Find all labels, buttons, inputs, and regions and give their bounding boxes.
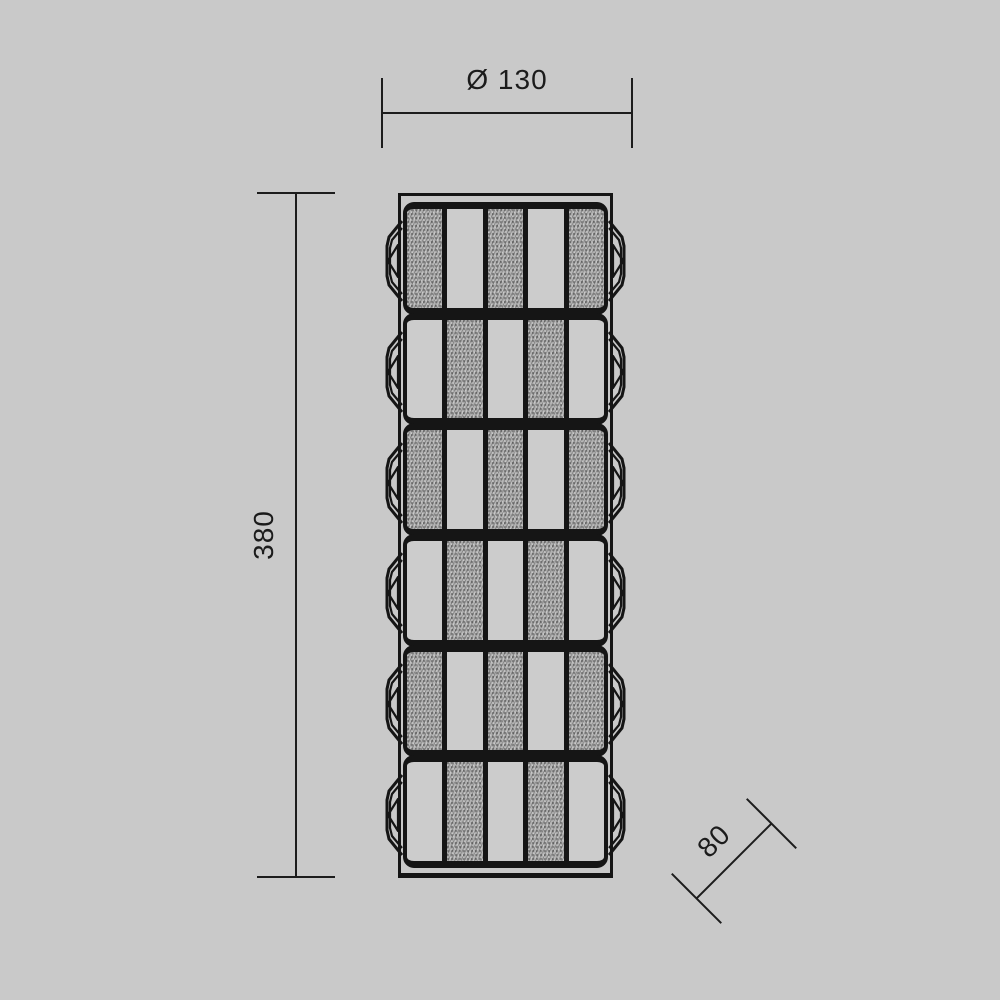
left-faceted-bulb-icon [383,662,403,746]
right-faceted-bulb-icon [608,441,628,525]
plain-glass-stripe [447,652,482,751]
hatched-glass-stripe [528,320,563,419]
depth-dimension: 80 [697,824,772,899]
plain-glass-stripe [528,652,563,751]
height-dimension-tick-bottom [257,876,335,878]
left-faceted-bulb-icon [383,219,403,303]
height-dimension-line [295,193,297,878]
plain-glass-stripe [488,762,523,861]
depth-dimension-label: 80 [667,794,762,889]
glass-module [403,202,608,315]
plain-glass-stripe [569,541,604,640]
diameter-dimension-tick-left [381,78,383,148]
right-faceted-bulb-icon [608,219,628,303]
left-faceted-bulb-icon [383,773,403,857]
right-faceted-bulb-icon [608,330,628,414]
drawing-canvas: Ø 130 380 80 [0,0,1000,1000]
plain-glass-stripe [407,320,442,419]
hatched-glass-stripe [447,541,482,640]
glass-module [403,534,608,647]
hatched-glass-stripe [488,209,523,308]
plain-glass-stripe [569,762,604,861]
hatched-glass-stripe [569,430,604,529]
glass-module [403,755,608,868]
right-faceted-bulb-icon [608,773,628,857]
height-dimension-label: 380 [250,475,278,595]
hatched-glass-stripe [407,430,442,529]
plain-glass-stripe [488,541,523,640]
diameter-dimension-tick-right [631,78,633,148]
plain-glass-stripe [407,541,442,640]
plain-glass-stripe [528,430,563,529]
right-faceted-bulb-icon [608,551,628,635]
plain-glass-stripe [407,762,442,861]
hatched-glass-stripe [488,430,523,529]
hatched-glass-stripe [488,652,523,751]
plain-glass-stripe [488,320,523,419]
hatched-glass-stripe [407,209,442,308]
hatched-glass-stripe [447,762,482,861]
luminaire-body-drawing [398,193,613,878]
module-stack [403,202,608,868]
hatched-glass-stripe [407,652,442,751]
right-faceted-bulb-icon [608,662,628,746]
glass-module [403,645,608,758]
diameter-dimension-label: Ø 130 [382,66,632,94]
plain-glass-stripe [569,320,604,419]
plain-glass-stripe [447,430,482,529]
diameter-dimension-line [382,112,632,114]
plain-glass-stripe [447,209,482,308]
hatched-glass-stripe [528,762,563,861]
left-faceted-bulb-icon [383,441,403,525]
hatched-glass-stripe [569,652,604,751]
height-dimension-tick-top [257,192,335,194]
hatched-glass-stripe [528,541,563,640]
glass-module [403,313,608,426]
hatched-glass-stripe [569,209,604,308]
left-faceted-bulb-icon [383,330,403,414]
glass-module [403,423,608,536]
hatched-glass-stripe [447,320,482,419]
plain-glass-stripe [528,209,563,308]
left-faceted-bulb-icon [383,551,403,635]
